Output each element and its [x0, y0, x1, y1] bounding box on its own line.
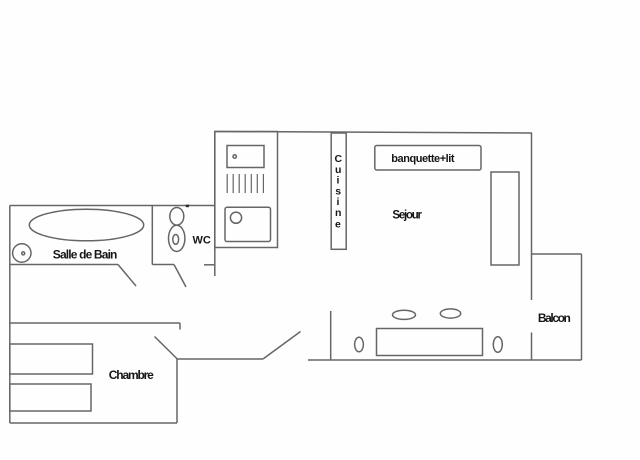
svg-text:Sejour: Sejour	[392, 210, 422, 222]
svg-text:Balcon: Balcon	[538, 311, 571, 325]
svg-text:banquette+lit: banquette+lit	[391, 153, 455, 165]
svg-text:n: n	[335, 207, 341, 219]
svg-text:e: e	[335, 219, 341, 231]
svg-text:Salle de Bain: Salle de Bain	[53, 248, 118, 262]
svg-text:WC: WC	[193, 235, 211, 247]
svg-text:Chambre: Chambre	[109, 368, 154, 382]
